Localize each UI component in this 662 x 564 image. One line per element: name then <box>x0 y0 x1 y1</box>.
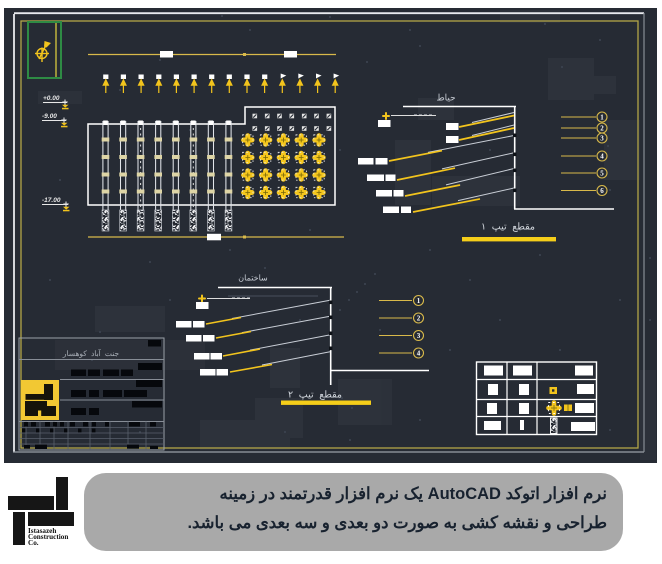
svg-text:3: 3 <box>600 135 604 143</box>
svg-text:2: 2 <box>600 125 604 133</box>
svg-text:حیاط: حیاط <box>436 93 455 103</box>
svg-text:-17.00: -17.00 <box>42 197 61 204</box>
svg-text:2: 2 <box>417 315 421 323</box>
svg-text:1: 1 <box>417 297 421 305</box>
svg-text:1: 1 <box>600 114 604 122</box>
svg-text:-9.00: -9.00 <box>42 113 57 120</box>
svg-text:جنت آباد کوهسار: جنت آباد کوهسار <box>62 348 120 358</box>
svg-text:مقطع تیپ ۱: مقطع تیپ ۱ <box>481 222 535 233</box>
svg-text:مقطع تیپ ۲: مقطع تیپ ۲ <box>288 390 342 401</box>
svg-text:+0.00: +0.00 <box>43 95 60 102</box>
svg-text:6: 6 <box>600 187 604 195</box>
svg-text:5: 5 <box>600 170 604 178</box>
svg-text:3: 3 <box>417 332 421 340</box>
svg-text:4: 4 <box>600 153 604 161</box>
svg-text:4: 4 <box>417 350 421 358</box>
svg-text:ساختمان: ساختمان <box>238 274 268 283</box>
